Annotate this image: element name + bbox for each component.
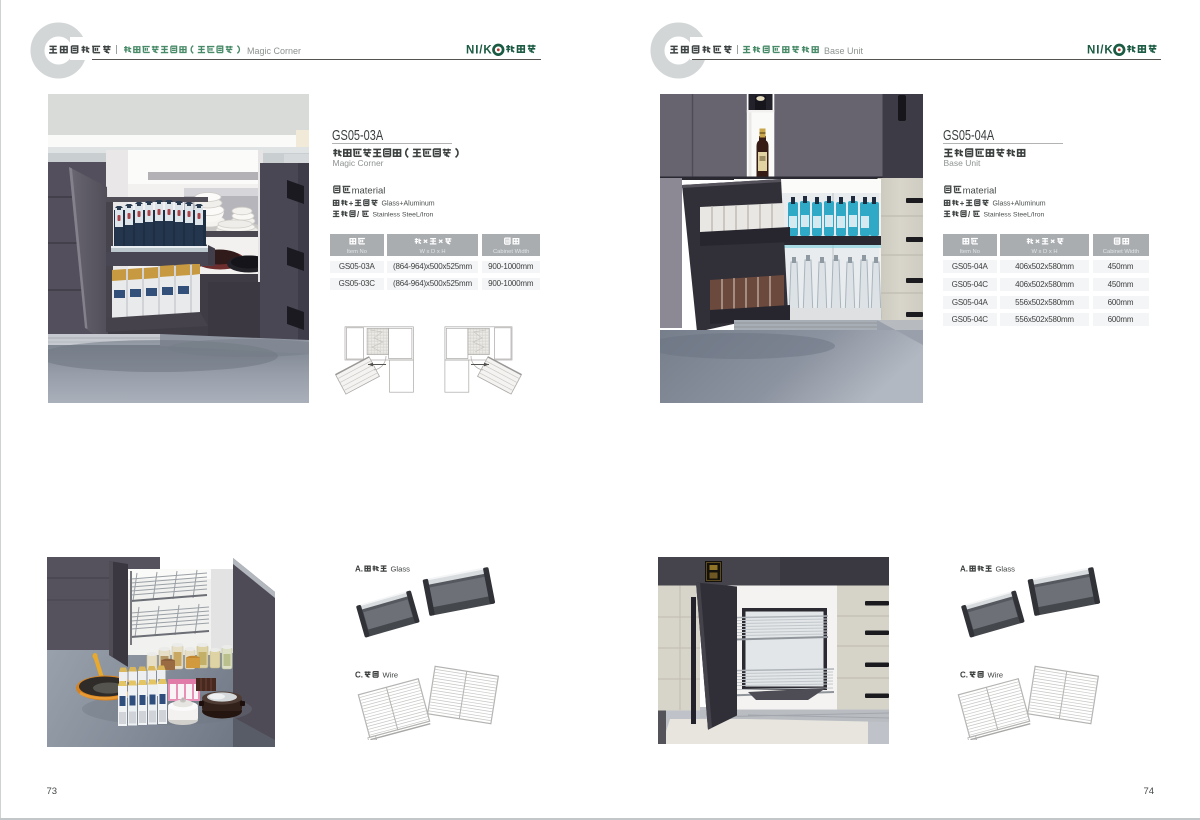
svg-text:W x D x H: W x D x H xyxy=(419,249,445,255)
svg-text:Stainless SteeL/Iron: Stainless SteeL/Iron xyxy=(373,212,434,219)
svg-text:material: material xyxy=(352,185,386,196)
svg-text:®: ® xyxy=(1153,44,1156,49)
svg-text:A.: A. xyxy=(960,565,968,574)
svg-text:+: + xyxy=(960,199,965,208)
svg-text:Item No: Item No xyxy=(347,249,367,255)
svg-text:Item No: Item No xyxy=(960,249,980,255)
svg-text:+: + xyxy=(349,199,354,208)
svg-text:W x D x H: W x D x H xyxy=(1031,249,1057,255)
svg-text:®: ® xyxy=(532,44,535,49)
svg-text:Wire: Wire xyxy=(382,670,398,679)
svg-text:Stainless SteeL/Iron: Stainless SteeL/Iron xyxy=(984,212,1045,219)
svg-text:material: material xyxy=(963,185,997,196)
svg-text:NI/K: NI/K xyxy=(466,44,493,56)
svg-text:NI/K: NI/K xyxy=(1087,44,1114,56)
svg-text:/: / xyxy=(357,210,360,219)
svg-text:Glass+Aluminum: Glass+Aluminum xyxy=(382,200,435,207)
svg-text:Glass+Aluminum: Glass+Aluminum xyxy=(993,200,1046,207)
svg-text:Wire: Wire xyxy=(988,670,1004,679)
svg-text:A.: A. xyxy=(355,565,363,574)
svg-text:C.: C. xyxy=(960,670,968,679)
svg-text:Cabinet Width: Cabinet Width xyxy=(492,249,528,255)
svg-text:Cabinet Width: Cabinet Width xyxy=(1102,249,1138,255)
svg-text:C.: C. xyxy=(355,670,363,679)
svg-text:/: / xyxy=(968,210,971,219)
svg-text:Glass: Glass xyxy=(996,565,1016,574)
svg-text:Glass: Glass xyxy=(390,565,410,574)
